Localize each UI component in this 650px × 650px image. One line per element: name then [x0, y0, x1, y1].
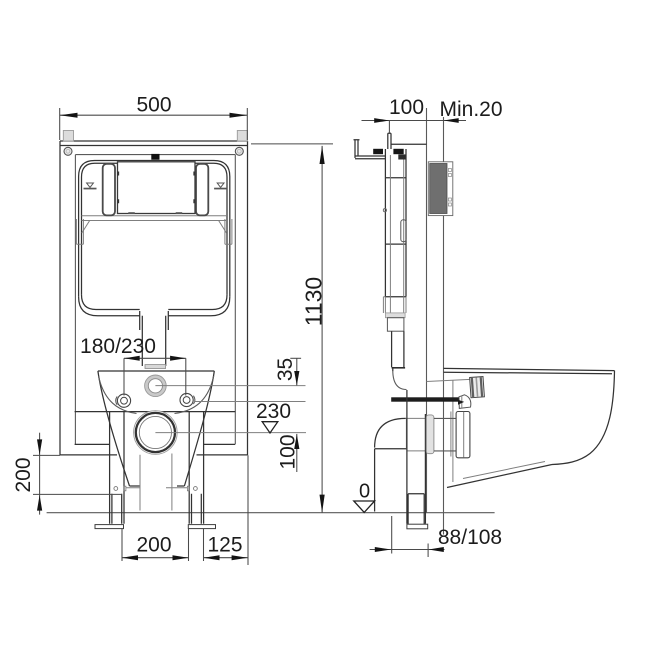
- svg-text:1130: 1130: [301, 277, 327, 326]
- svg-text:125: 125: [207, 534, 242, 557]
- svg-text:0: 0: [359, 481, 370, 503]
- svg-text:100: 100: [389, 96, 424, 119]
- svg-text:200: 200: [12, 457, 35, 492]
- svg-text:Min.20: Min.20: [440, 98, 503, 121]
- svg-text:100: 100: [277, 434, 300, 469]
- svg-text:500: 500: [136, 94, 171, 117]
- svg-text:88/108: 88/108: [438, 526, 502, 549]
- svg-text:35: 35: [274, 358, 297, 381]
- svg-text:230: 230: [256, 400, 291, 423]
- svg-text:200: 200: [136, 534, 171, 557]
- svg-text:180/230: 180/230: [80, 335, 156, 358]
